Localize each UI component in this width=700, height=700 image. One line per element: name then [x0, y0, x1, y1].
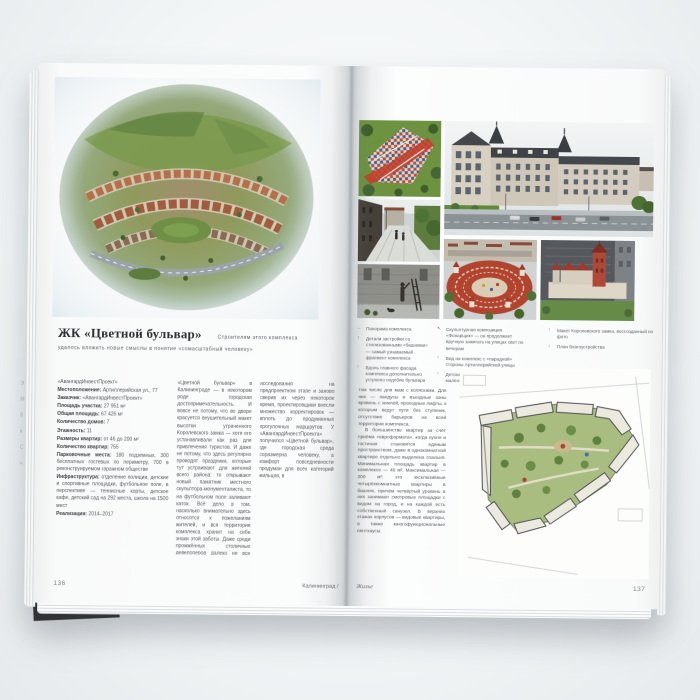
subtitle-lead: Строителям этого комплекса — [218, 335, 298, 344]
arrow-icon: ← — [357, 326, 363, 332]
caption: ↓План благоустройства — [548, 344, 654, 351]
fact-row: «АвангардИнвестПроект» — [57, 379, 169, 387]
caption: ←Панорама комплекса — [357, 326, 429, 333]
arrow-icon: ↖ — [437, 327, 443, 352]
arrow-icon: ↑ — [357, 336, 363, 361]
arrow-icon: ↑ — [548, 328, 554, 340]
paragraph: том числе для мам с колясками. Для них —… — [358, 388, 446, 429]
fact-row: Реализация: 2014–2017 — [56, 511, 168, 519]
left-page-footer: 136 Калининград / — [53, 580, 338, 590]
under-page-text-fragments: Э М б к С ч — [20, 381, 25, 467]
right-page-footer: Жилье 137 — [356, 583, 645, 593]
fact-row: Количество квартир: 755 — [57, 444, 169, 452]
arrow-icon: ↓ — [548, 344, 554, 350]
panorama-photo-illustration — [52, 77, 320, 320]
masterplan-drawing — [450, 367, 657, 579]
walkway-street-photo — [358, 199, 441, 262]
photo-grid — [357, 120, 654, 321]
photo-column-left — [357, 120, 441, 319]
right-page-body-text: том числе для мам с колясками. Для них —… — [357, 388, 447, 537]
masterplan-illustration — [450, 367, 657, 579]
complex-facade-photo — [444, 121, 654, 237]
right-page-number: 137 — [633, 586, 645, 593]
left-page: Э М б к С ч — [33, 63, 352, 606]
left-page-number: 136 — [53, 580, 65, 587]
caption: ↑Детали застройки со стилизованными «баш… — [357, 336, 429, 362]
left-running-footer: Калининград / — [302, 584, 338, 590]
caption: ↑Макет Королевского замка, воссозданный … — [548, 328, 654, 341]
castle-model-photo — [540, 240, 635, 321]
courtyard-aerial-photo — [358, 120, 441, 197]
fact-row: Общая площадь: 67 426 м² — [57, 411, 169, 419]
photo-row-bottom — [443, 239, 653, 321]
fact-row: Заказчик: «АвангардИнвестПроект» — [57, 395, 169, 403]
complex-title: ЖК «Цветной бульвар» — [58, 325, 202, 343]
caption: ↑Вдоль главного фасада комплекса дополни… — [357, 365, 429, 384]
paragraph: В большинстве квартир за счёт приёма «ев… — [357, 428, 446, 536]
body-text-column-2: исследования на предпроектном этапе и за… — [258, 381, 334, 556]
fact-row: Этажность: 11 — [57, 428, 169, 436]
right-page: ←Панорама комплекса ↑Детали застройки со… — [346, 66, 665, 609]
photo-column-right — [443, 121, 654, 321]
lamplighter-sculpture-photo — [357, 264, 440, 319]
right-running-footer: Жилье — [356, 584, 373, 590]
photo-of-open-book: Э М б к С ч — [0, 0, 700, 700]
arrow-icon: ↑ — [436, 372, 442, 384]
round-plaza-photo — [443, 239, 537, 320]
book-spread: Э М б к С ч — [33, 63, 665, 610]
fact-row: Количество домов: 7 — [57, 419, 169, 427]
captions-group-a: ←Панорама комплекса ↑Детали застройки со… — [356, 326, 429, 385]
left-page-columns: «АвангардИнвестПроект» Местоположение: А… — [56, 379, 335, 556]
arrow-icon: ↑ — [437, 356, 443, 368]
fact-row: Местоположение: Артиллерийская ул., 77 — [57, 387, 169, 395]
facts-column: «АвангардИнвестПроект» Местоположение: А… — [56, 379, 170, 554]
subtitle-rest: удалось вложить новые смыслы в понятие «… — [58, 345, 333, 354]
arrow-icon: ↑ — [357, 365, 363, 384]
book: Э М б к С ч — [33, 63, 665, 610]
title-block: ЖК «Цветной бульвар» Строителям этого ко… — [58, 325, 333, 354]
body-text-column-1: «Цветной бульвар» в Калининграде — в нек… — [176, 380, 252, 555]
caption: ↖Скульптурная композиция «Фонарщик» — он… — [437, 327, 525, 353]
fact-row: Инфраструктура: отделение полиции, детск… — [56, 474, 168, 511]
aerial-panorama-photo — [52, 77, 320, 320]
fact-row: Парковочные места: 180 подземных, 300 бе… — [57, 452, 169, 474]
fact-row: Размеры квартир: от 46 до 200 м² — [57, 436, 169, 444]
